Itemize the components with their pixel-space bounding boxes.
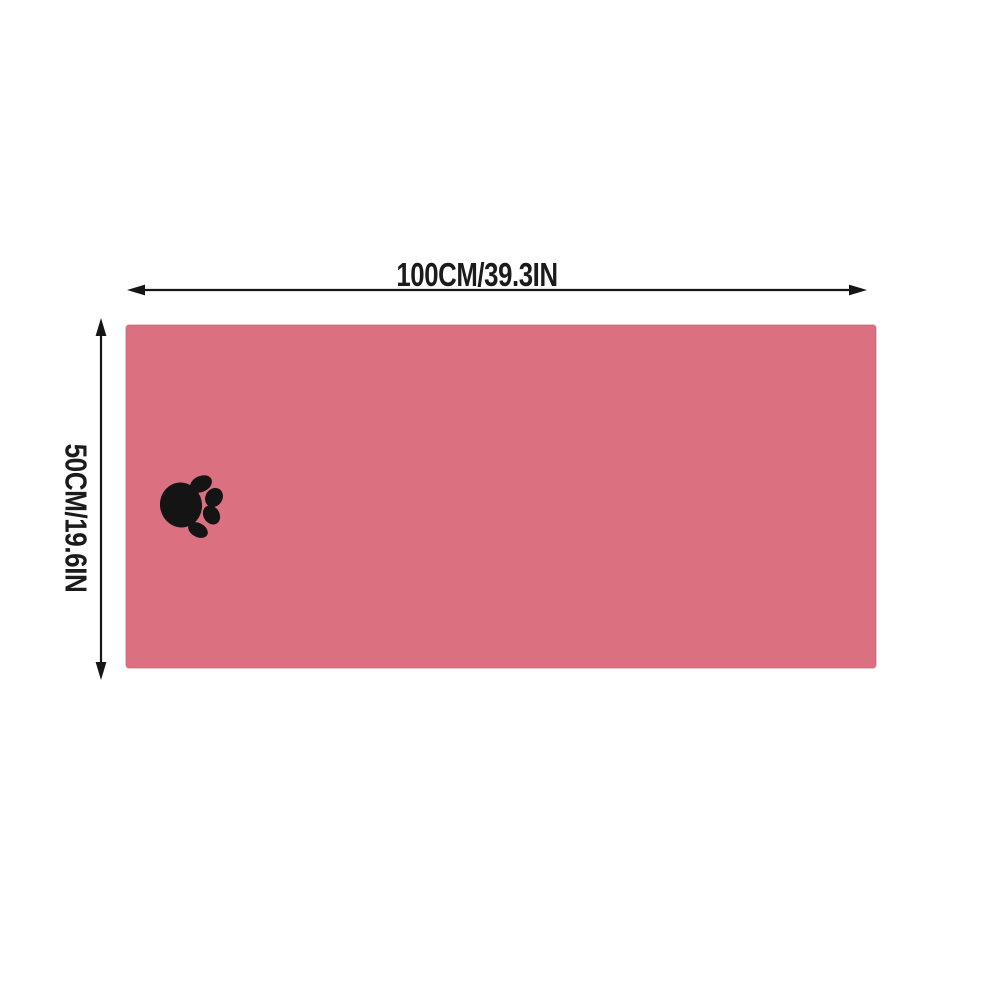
height-dimension-arrow [96, 318, 107, 680]
diagram-graphics [0, 0, 1001, 1001]
product-dimension-diagram: 100CM/39.3IN 50CM/19.6IN [0, 0, 1001, 1001]
height-dimension-label: 50CM/19.6IN [61, 444, 92, 593]
towel-rectangle [126, 325, 876, 668]
width-dimension-label: 100CM/39.3IN [396, 258, 557, 291]
